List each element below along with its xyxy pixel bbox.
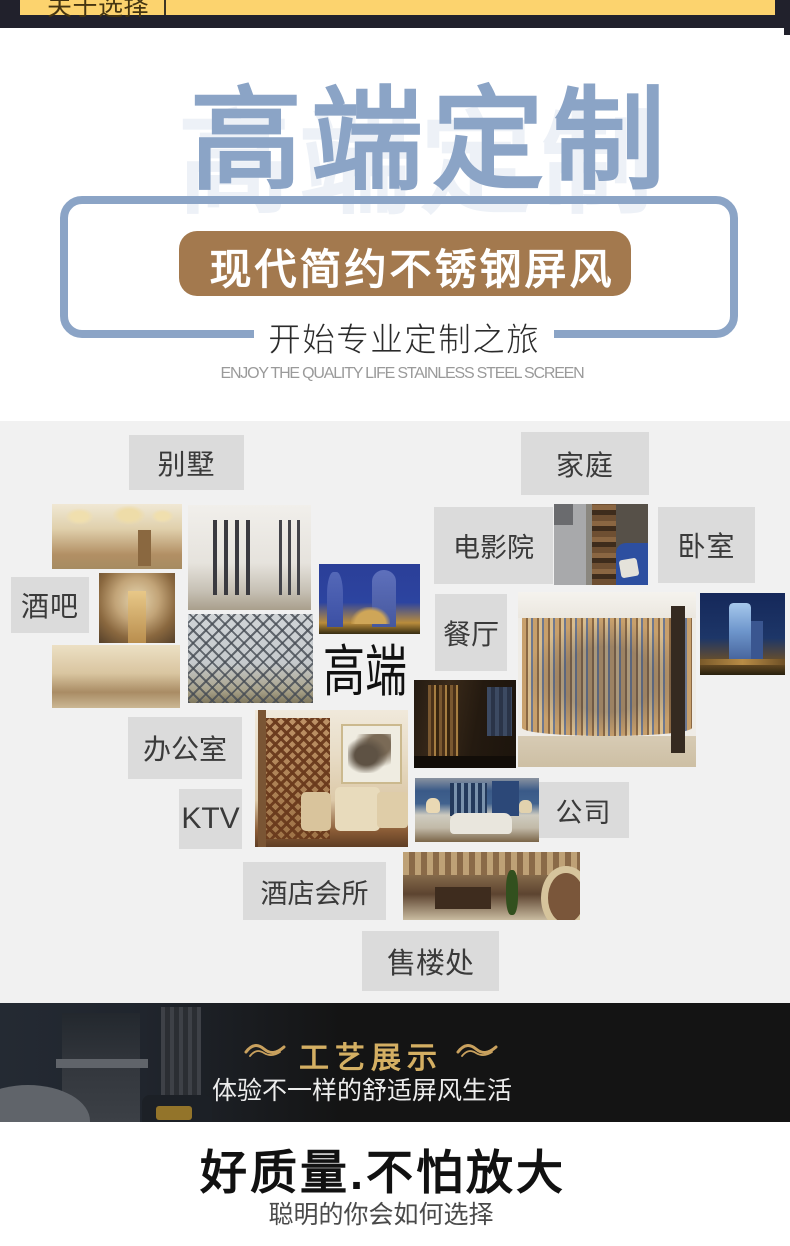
svg-text:高端: 高端 bbox=[323, 640, 407, 702]
